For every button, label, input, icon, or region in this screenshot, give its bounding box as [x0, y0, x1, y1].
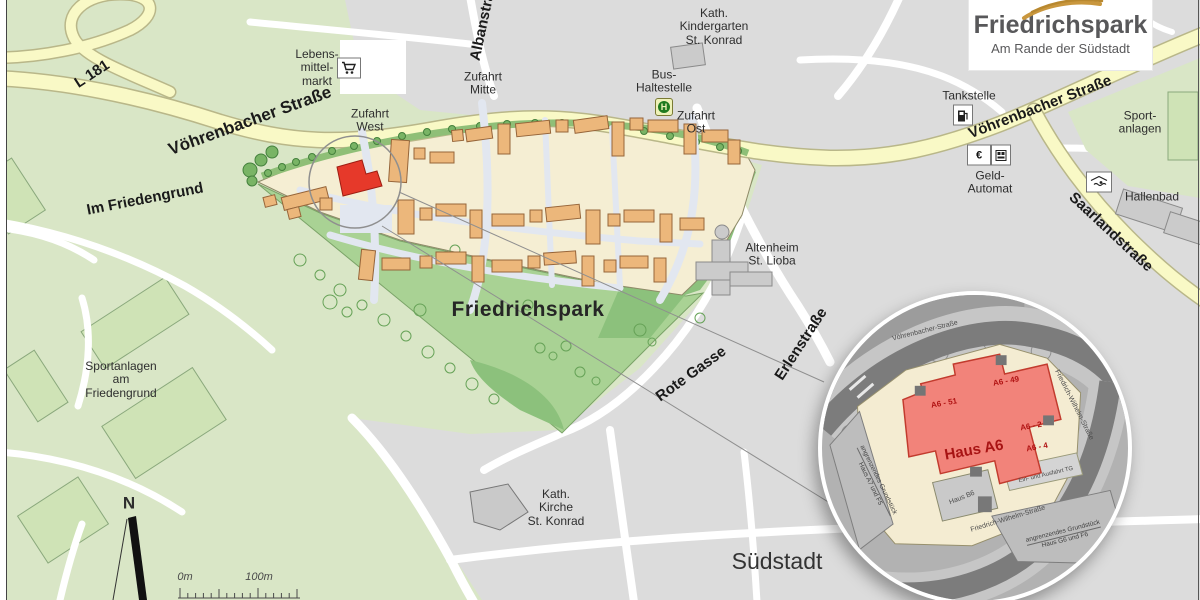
scale-start-label: 0m — [177, 571, 192, 583]
logo-box: Friedrichspark Am Rande der Südstadt — [969, 0, 1152, 70]
label-sportanlagen-west: SportanlagenamFriedengrund — [85, 360, 156, 400]
label-tankstelle: Tankstelle — [942, 89, 995, 102]
label-sportanlagen-ost: Sport-anlagen — [1119, 110, 1162, 137]
label-geld-automat: Geld-Automat — [968, 170, 1013, 197]
euro-hand-icon: € — [967, 145, 991, 166]
swimmer-icon — [1086, 172, 1112, 193]
bus-stop-icon: H — [655, 98, 673, 116]
label-kindergarten: Kath.KindergartenSt. Konrad — [680, 7, 749, 47]
label-zufahrt-mitte: ZufahrtMitte — [464, 71, 502, 98]
fuel-pump-icon — [953, 105, 973, 126]
map-canvas: L 181 Vöhrenbacher Straße Im Friedengrun… — [0, 0, 1200, 600]
label-zufahrt-west: ZufahrtWest — [351, 108, 389, 135]
scale-end-label: 100m — [245, 571, 273, 583]
shopping-cart-icon — [337, 58, 361, 79]
label-altenheim: AltenheimSt. Lioba — [745, 242, 798, 269]
area-label-friedrichspark: Friedrichspark — [452, 298, 605, 322]
atm-card-icon — [991, 145, 1011, 166]
label-bus-haltestelle: Bus-Haltestelle — [636, 69, 692, 96]
frame-left — [0, 0, 6, 600]
compass-north-label: N — [123, 493, 135, 512]
area-label-suedstadt: Südstadt — [732, 549, 823, 575]
label-kirche: Kath.KircheSt. Konrad — [528, 488, 585, 528]
logo-swoosh-icon — [1016, 0, 1106, 20]
logo-subtitle: Am Rande der Südstadt — [969, 41, 1152, 56]
detail-inset-circle: Vöhrenbacher-Straße Friedrich-Wilhelm-St… — [818, 291, 1132, 600]
sport-field-east — [1168, 92, 1198, 160]
label-hallenbad: Hallenbad — [1125, 190, 1179, 203]
label-zufahrt-ost: ZufahrtOst — [677, 110, 715, 137]
label-lebensmittelmarkt: Lebens-mittel-markt — [295, 48, 338, 88]
